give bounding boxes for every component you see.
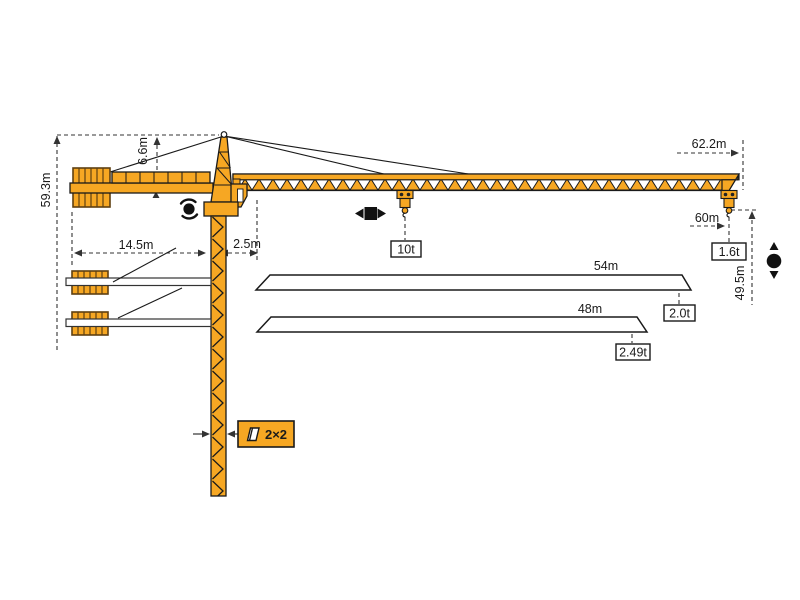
cab-window <box>238 189 244 202</box>
max-load-box: 10t <box>391 241 421 257</box>
hook-radius-label: 60m <box>695 211 719 225</box>
crane-diagram: 10t 1.6t 2.0t 2.49t 2×2 59.3m 6.6m 14.5m… <box>0 0 800 600</box>
tie-bar-2 <box>66 319 211 327</box>
tie-bar-1 <box>66 278 211 286</box>
head-height-label: 6.6m <box>136 137 150 165</box>
turntable <box>204 202 238 216</box>
mast-section-box: 2×2 <box>238 421 294 447</box>
tip-load-54-label: 2.0t <box>669 307 690 321</box>
trolley-travel-icon <box>355 207 386 220</box>
tower-mast <box>211 216 226 496</box>
crane-diagram-svg: 10t 1.6t 2.0t 2.49t 2×2 59.3m 6.6m 14.5m… <box>0 0 800 600</box>
hook-tip <box>726 208 732 214</box>
hook-height-label: 49.5m <box>733 266 747 301</box>
tower-head <box>211 137 233 202</box>
rotation-icon <box>181 200 197 219</box>
jib-option-48 <box>257 317 647 332</box>
tip-load-full-label: 1.6t <box>719 245 740 259</box>
jib-radius-label: 62.2m <box>692 137 727 151</box>
jib-option-54 <box>256 275 691 290</box>
counterjib-radius-label: 14.5m <box>119 238 154 252</box>
jib-option-48-label: 48m <box>578 302 602 316</box>
mast-section-label: 2×2 <box>265 427 287 442</box>
tip-load-box-48: 2.49t <box>616 344 650 360</box>
main-jib <box>233 174 739 191</box>
ballast-option-2 <box>66 312 211 335</box>
trolley-hook-mid <box>397 191 413 218</box>
tower-apex-pin <box>221 132 227 138</box>
hook-mid <box>402 208 408 214</box>
counterjib-platform <box>112 172 210 183</box>
counterjib-beam <box>70 183 213 193</box>
hoist-up-down-icon <box>767 242 782 279</box>
tip-load-box-54: 2.0t <box>664 305 695 321</box>
max-load-label: 10t <box>397 243 415 257</box>
trolley-hook-tip <box>721 191 737 218</box>
total-height-label: 59.3m <box>39 173 53 208</box>
counter-jib <box>70 168 213 207</box>
jib-option-54-label: 54m <box>594 259 618 273</box>
tip-load-48-label: 2.49t <box>619 346 647 360</box>
rear-clearance-label: 2.5m <box>233 237 261 251</box>
ballast-option-1 <box>66 271 211 294</box>
tip-load-box-full: 1.6t <box>712 243 746 260</box>
pendant-cables <box>110 136 475 175</box>
